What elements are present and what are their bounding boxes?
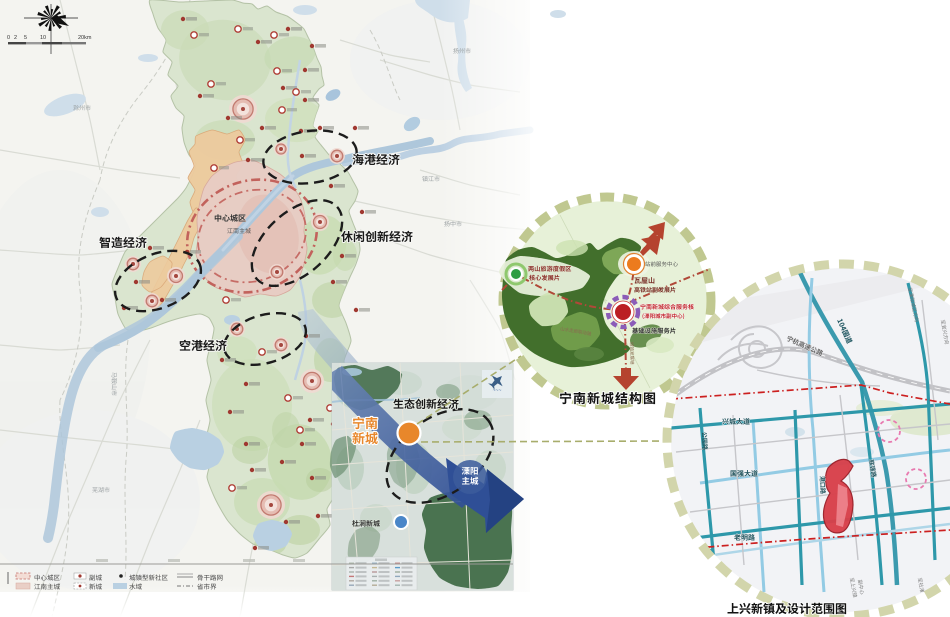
svg-text:5: 5 — [24, 35, 27, 41]
svg-text:2: 2 — [14, 35, 17, 41]
svg-text:20km: 20km — [78, 35, 92, 41]
svg-text:10: 10 — [40, 35, 46, 41]
svg-text:0: 0 — [7, 35, 10, 41]
